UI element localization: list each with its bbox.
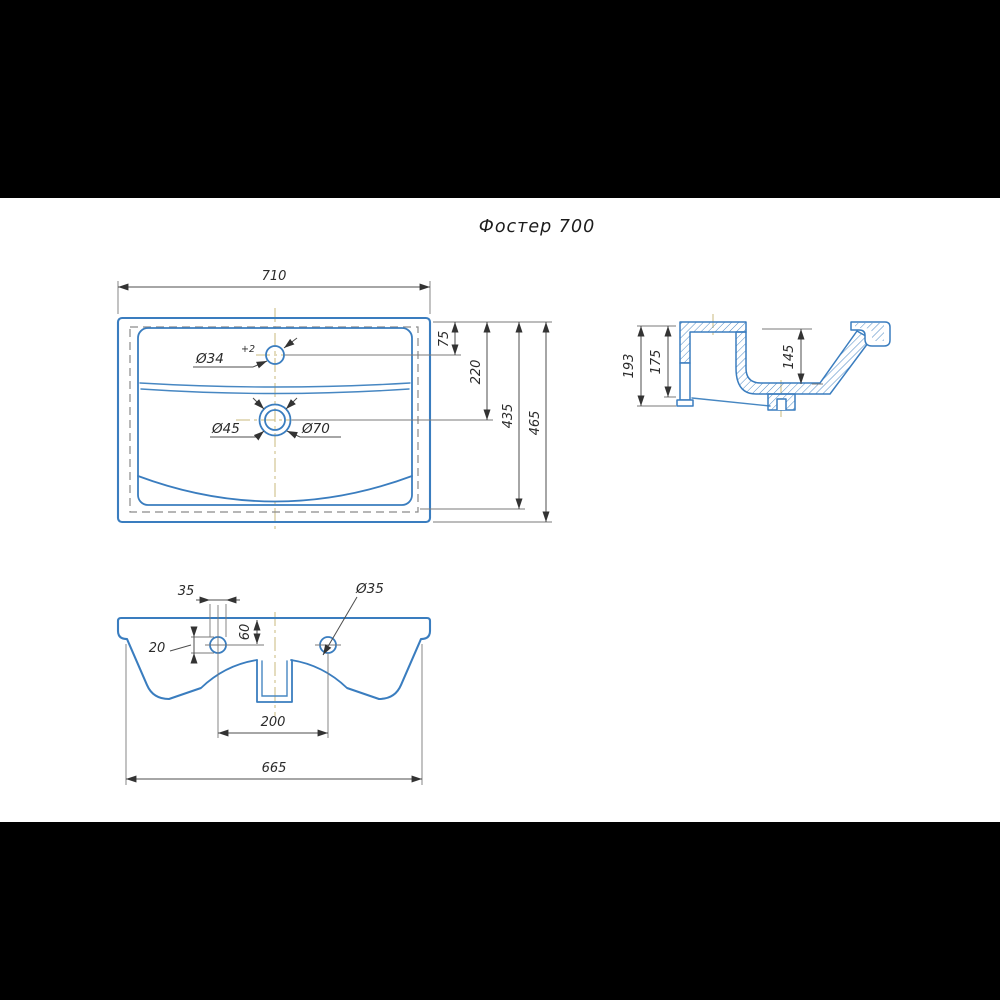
front-view: 35 20 60 Ø35 200 665 — [118, 581, 430, 785]
label-faucet-tolerance: +2 — [241, 344, 255, 355]
drain-boss-opening — [777, 399, 786, 410]
dim-depth: 465 — [528, 411, 543, 436]
drain-inner-leader-arrow — [257, 431, 264, 437]
dim-overall-width: 710 — [262, 269, 287, 284]
dim-body-height: 175 — [649, 350, 664, 375]
dim-body-width: 665 — [262, 761, 287, 776]
hole-offset-leader — [170, 645, 191, 651]
front-body-outline — [118, 618, 430, 699]
label-hole-diameter: Ø35 — [355, 581, 384, 597]
dim-hole-edge-offset: 20 — [149, 641, 166, 656]
label-drain-inner: Ø45 — [211, 421, 240, 437]
back-wall-lower — [680, 363, 690, 400]
label-faucet-hole: Ø34 — [195, 351, 224, 367]
faucet-leader-arrow-2 — [284, 338, 297, 348]
top-view: 710 75 220 435 465 Ø34 +2 Ø45 — [118, 269, 552, 532]
dim-hole-spacing: 200 — [261, 715, 286, 730]
apron-bottom-edge — [692, 398, 770, 406]
bowl-underside-arch-left — [201, 660, 257, 688]
label-drain-outer: Ø70 — [301, 421, 330, 437]
back-wall-foot — [677, 400, 693, 406]
dim-faucet-offset: 75 — [437, 331, 452, 348]
dim-inner-length: 435 — [501, 404, 516, 429]
dim-hole-top-offset: 60 — [238, 624, 253, 641]
side-section-view: 193 175 145 — [622, 314, 890, 417]
dim-hole-diameter-linear: 35 — [178, 584, 195, 599]
technical-drawing: Фостер 700 710 75 220 — [0, 0, 1000, 1000]
faucet-leader-arrow — [253, 361, 267, 367]
dim-basin-depth: 145 — [782, 345, 797, 370]
screenshot: Фостер 700 710 75 220 — [0, 0, 1000, 1000]
bowl-underside-arch-right — [291, 660, 347, 688]
dim-drain-offset: 220 — [469, 360, 484, 385]
drain-outer-leader-arrow — [287, 431, 300, 437]
drain-outer-leader-arrow-2 — [253, 398, 264, 409]
basin-section — [736, 331, 871, 394]
dim-total-height: 193 — [622, 354, 637, 379]
hole-diameter-leader — [323, 597, 357, 655]
width-extension-lines — [118, 281, 430, 314]
drawing-title: Фостер 700 — [479, 217, 595, 237]
drain-inner-leader-arrow-2 — [286, 398, 297, 409]
